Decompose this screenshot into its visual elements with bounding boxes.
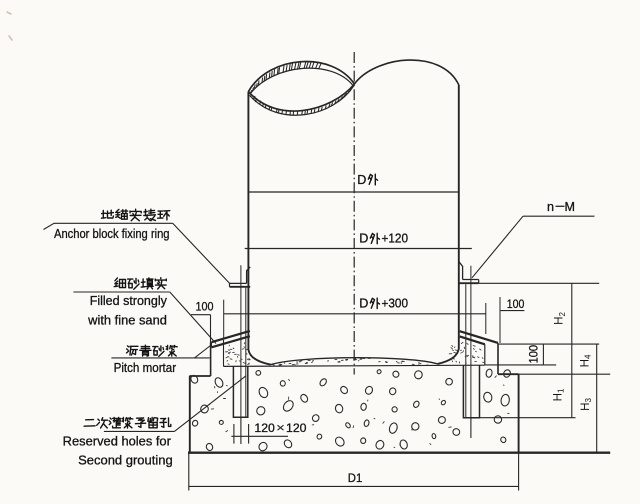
svg-text:D: D <box>359 296 368 310</box>
svg-text:Second grouting: Second grouting <box>78 453 173 468</box>
svg-text:D: D <box>357 173 366 187</box>
svg-text:100: 100 <box>526 345 540 364</box>
svg-text:Filled strongly: Filled strongly <box>90 293 168 308</box>
svg-text:120: 120 <box>254 421 275 435</box>
svg-text:n: n <box>547 200 554 214</box>
svg-text:D: D <box>359 232 368 246</box>
svg-text:M: M <box>565 200 576 214</box>
svg-text:Anchor block fixing ring: Anchor block fixing ring <box>54 226 170 241</box>
svg-text:Reserved holes for: Reserved holes for <box>63 434 172 449</box>
svg-text:120: 120 <box>286 421 307 435</box>
svg-text:+120: +120 <box>382 232 409 246</box>
svg-text:100: 100 <box>196 299 214 313</box>
svg-text:with fine sand: with fine sand <box>87 313 167 328</box>
svg-text:100: 100 <box>507 297 525 311</box>
svg-text:+300: +300 <box>382 296 409 310</box>
svg-text:D1: D1 <box>348 471 363 485</box>
svg-text:Pitch mortar: Pitch mortar <box>114 360 177 375</box>
